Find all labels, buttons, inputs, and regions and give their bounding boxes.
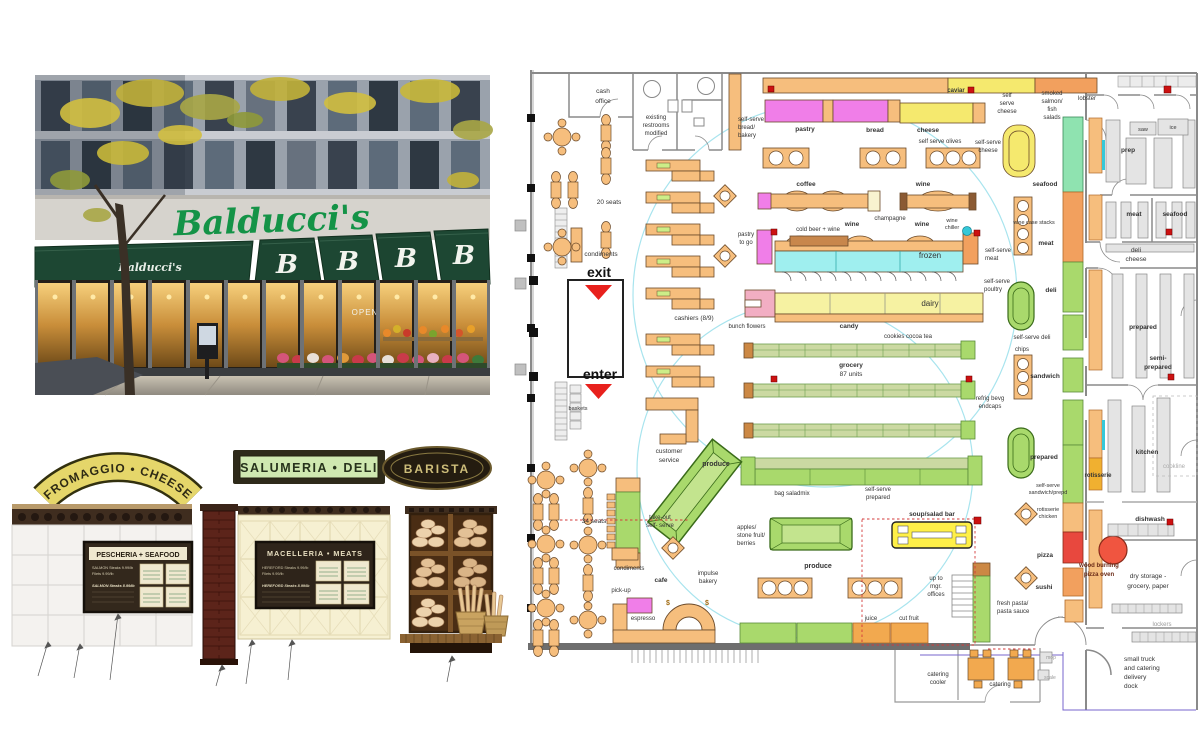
- pizza-oven: [1099, 536, 1127, 564]
- plan-label-exit: exit: [587, 264, 611, 280]
- plan-label-chiller: chiller: [945, 225, 960, 231]
- awning-monogram-b4: B: [452, 241, 475, 271]
- plan-label-catering: catering: [989, 682, 1010, 688]
- plan-label-rotisserie: rotisserie: [1037, 507, 1059, 513]
- bottom-cases: [740, 623, 928, 643]
- macelleria-menu-line: HEREFORD Steaks 9.99/lb: [262, 566, 308, 570]
- plan-label-prepared: prepared: [1144, 364, 1172, 371]
- plan-label-catering: catering: [927, 672, 948, 678]
- plan-label-self-serve: self-serve: [865, 487, 892, 493]
- frozen-cases: [757, 227, 978, 282]
- plan-label-chips: chips: [1015, 347, 1029, 353]
- plan-label-pick-up: pick-up: [611, 588, 631, 594]
- awning-monogram-b2: B: [336, 247, 359, 277]
- plan-label-dock: dock: [1124, 683, 1138, 690]
- plan-label-self-serve: self-serve: [975, 140, 1002, 146]
- plan-label-offices: offices: [927, 592, 944, 598]
- salumeria-deli-sign: SALUMERIA • DELI: [233, 450, 385, 484]
- plan-label-serve: serve: [1000, 101, 1015, 107]
- plan-label-cookline: cookline: [1163, 464, 1186, 470]
- plan-label-salads: salads: [1043, 115, 1060, 121]
- plan-label-condiments: condiments: [584, 251, 618, 258]
- plan-label-87-units: 87 units: [840, 371, 864, 378]
- plan-label-prepared: prepared: [1129, 324, 1157, 331]
- cafe-counter[interactable]: [613, 598, 715, 643]
- plan-label-and-catering: and catering: [1124, 665, 1160, 672]
- plan-label-coffee: coffee: [796, 181, 816, 188]
- plan-label-self-serve: self-serve: [738, 117, 765, 123]
- plan-label-grocery-paper: grocery, paper: [1127, 583, 1169, 590]
- plan-label-delivery: delivery: [1124, 674, 1147, 681]
- plan-label-take-out: take-out: [649, 515, 671, 521]
- plan-label-lobster: lobster: [1078, 96, 1096, 102]
- plan-label-pastry: pastry: [795, 126, 815, 133]
- dairy-cases: [745, 290, 983, 322]
- produce-demo-table: [758, 578, 812, 598]
- plan-label-endcaps: endcaps: [979, 404, 1002, 410]
- plan-label-small-truck: small truck: [1124, 656, 1156, 663]
- plan-label-20-seats: 20 seats: [597, 199, 622, 206]
- espresso-station[interactable]: [627, 598, 652, 613]
- plan-label-sandwich: sandwich: [1030, 373, 1060, 380]
- plan-label-wine-case-stacks: wine case stacks: [1012, 220, 1055, 226]
- bottom-wall: [528, 643, 970, 663]
- plan-label-stone-fruit-: stone fruit/: [737, 533, 765, 539]
- pescheria-menu-board: PESCHERIA + SEAFOOD SALMON Steaks 9.99/l…: [84, 542, 192, 612]
- plan-label-office: office: [595, 98, 611, 105]
- plan-label-34-seats: 34 seats: [582, 518, 607, 525]
- plan-label-restrooms: restrooms: [643, 123, 670, 129]
- bread-display: [400, 506, 508, 682]
- plan-label-baskets: baskets: [569, 406, 588, 412]
- plan-label-bread-: bread/: [738, 125, 755, 131]
- plan-label-self-serve: self-serve: [1036, 483, 1060, 489]
- plan-label--: $: [666, 600, 670, 607]
- grocery-gondolas: [744, 341, 975, 439]
- floor-plan: cashofficeexistingrestroomsmodified20 se…: [512, 52, 1200, 720]
- plan-label-rotisserie: rotisserie: [1084, 473, 1112, 479]
- awning-monogram-b3: B: [394, 244, 417, 274]
- plan-label-self-serve: self-serve: [985, 248, 1012, 254]
- catering-table: [1008, 650, 1034, 688]
- plan-label-bakery: bakery: [738, 133, 756, 139]
- plan-label-cooler: cooler: [930, 680, 946, 686]
- plan-label-champagne: champagne: [874, 216, 906, 222]
- plan-label-to-go: to go: [739, 240, 753, 246]
- macelleria-menu-board: MACELLERIA • MEATS HEREFORD Steaks 9.99/…: [256, 542, 374, 608]
- plan-label-poultry: poultry: [984, 287, 1002, 293]
- plan-label-pasta-sauce: pasta sauce: [997, 609, 1030, 615]
- plan-label-soup-salad-bar: soup/salad bar: [909, 511, 955, 518]
- callout-leaders: [447, 656, 455, 682]
- stairs-mgr-office[interactable]: [952, 575, 976, 617]
- fresh-pasta-gondola: [973, 563, 990, 642]
- plan-label-bag-saladmix: bag saladmix: [774, 491, 809, 497]
- plan-label-pastry: pastry: [738, 232, 754, 238]
- plan-label-fresh-pasta-: fresh pasta/: [997, 601, 1029, 607]
- plan-label-sushi: sushi: [1036, 584, 1053, 591]
- salumeria-sign-label: SALUMERIA • DELI: [240, 461, 378, 475]
- barista-sign: BARISTA: [383, 447, 491, 489]
- storefront-photo: Balducci's Balducci's B B B B: [35, 75, 490, 395]
- plan-label-self-serve: self-serve: [984, 279, 1011, 285]
- plan-label-mgr-: mgr.: [930, 584, 942, 590]
- wine-barrel-aisle: [900, 191, 976, 211]
- macelleria-elevation: MACELLERIA • MEATS HEREFORD Steaks 9.99/…: [200, 504, 390, 686]
- plan-label-deli: deli: [1045, 287, 1056, 294]
- checkout-lanes[interactable]: [646, 160, 714, 387]
- plan-label-dishwash: dishwash: [1135, 516, 1165, 523]
- plan-label-prep: prep: [1121, 147, 1135, 154]
- customer-service-desk[interactable]: [646, 398, 698, 444]
- plan-label-enter: enter: [583, 366, 618, 382]
- plan-label-self-serve: self- serve: [646, 523, 674, 529]
- plan-label-salmon-: salmon/: [1041, 99, 1062, 105]
- plan-label-scale: scale: [1044, 675, 1056, 681]
- corridor-wall-cases: [1089, 118, 1105, 608]
- plan-label-bunch-flowers: bunch flowers: [728, 324, 765, 330]
- plan-label-pizza-oven: pizza oven: [1084, 572, 1115, 578]
- plan-label-produce: produce: [804, 563, 832, 570]
- plan-label-condiments: condiments: [614, 566, 645, 572]
- plan-label-sandwich-prepd: sandwich/prepd: [1029, 490, 1068, 496]
- plan-label-cafe: cafe: [654, 577, 667, 584]
- apples-table: [770, 518, 852, 550]
- produce-demo-table: [848, 578, 902, 598]
- plan-label-service: service: [659, 457, 680, 464]
- plan-label-cashiers-8-9-: cashiers (8/9): [674, 315, 713, 322]
- plan-label-self-serve-deli: self-serve deli: [1013, 335, 1050, 341]
- pescheria-elevation: PESCHERIA + SEAFOOD SALMON Steaks 9.99/l…: [12, 504, 192, 680]
- plan-label-berries: berries: [737, 541, 755, 547]
- plan-label-frozen: frozen: [919, 251, 941, 260]
- plan-label-bakery: bakery: [699, 579, 717, 585]
- plan-label-seafood: seafood: [1033, 181, 1058, 188]
- plan-label-cookies-cocoa-tea: cookies cocoa tea: [884, 334, 933, 340]
- plan-label-prepared: prepared: [1030, 454, 1058, 461]
- plan-label-fish: fish: [1047, 107, 1056, 113]
- plan-label-up-to: up to: [929, 576, 943, 582]
- open-sign: OPEN: [352, 308, 379, 317]
- diamond-table: [1015, 567, 1038, 590]
- plan-label-ice: ice: [1169, 125, 1176, 131]
- pescheria-title: PESCHERIA + SEAFOOD: [96, 552, 179, 559]
- demo-table: [860, 148, 906, 168]
- plan-label-modified: modified: [645, 131, 668, 137]
- plan-label-cheese: cheese: [1126, 256, 1147, 263]
- pescheria-menu-line: SALMON Steaks 9.99/lb: [92, 566, 133, 570]
- awning-monogram-b1: B: [275, 250, 298, 280]
- plan-label-smoked: smoked: [1041, 91, 1062, 97]
- plan-label-wine: wine: [915, 181, 931, 188]
- plan-label-impulse: impulse: [698, 571, 719, 577]
- plan-label-cheese: cheese: [917, 127, 939, 134]
- plan-label-dairy: dairy: [921, 299, 938, 308]
- plan-label-meat: meat: [1126, 211, 1142, 218]
- plan-label-kitchen: kitchen: [1136, 449, 1159, 456]
- plan-label-deli: deli: [1131, 247, 1141, 254]
- plan-label-dry-storage-: dry storage -: [1130, 573, 1167, 580]
- demo-table: [763, 148, 809, 168]
- plan-label-cut-fruit: cut fruit: [899, 616, 919, 622]
- plan-label-cheese: cheese: [997, 109, 1017, 115]
- plan-label-wine: wine: [844, 221, 860, 228]
- plan-label-chicken: chicken: [1039, 514, 1058, 520]
- plan-label-meat: meat: [985, 256, 999, 262]
- presentation-board: { "photo": { "script_sign": "Balducci's"…: [0, 0, 1200, 740]
- plan-label-cash: cash: [596, 88, 610, 95]
- plan-label-customer: customer: [656, 448, 684, 455]
- cafe-seating-34[interactable]: [528, 450, 606, 657]
- barista-sign-label: BARISTA: [404, 462, 470, 476]
- plan-label-existing: existing: [646, 115, 666, 121]
- produce-gondola: [741, 456, 982, 485]
- plan-label-self-serve-olives: self serve olives: [919, 139, 962, 145]
- plan-label-wine: wine: [914, 221, 930, 228]
- plan-label-semi-: semi-: [1150, 355, 1167, 362]
- plan-label-produce: produce: [702, 461, 730, 468]
- plan-label-prepared: prepared: [866, 495, 890, 501]
- plan-label-wood-burning: wood burning: [1078, 563, 1119, 569]
- plan-label-cheese: cheese: [978, 148, 998, 154]
- plan-label-grocery: grocery: [839, 362, 863, 369]
- macelleria-menu-line: Filets 9.99/lb: [262, 572, 284, 576]
- plan-label-caviar: caviar: [947, 88, 965, 94]
- takeout-gondola: [607, 478, 640, 568]
- plan-label-juice: juice: [864, 616, 878, 622]
- plan-label-saw: saw: [1138, 127, 1148, 133]
- plan-label-pizza: pizza: [1037, 552, 1053, 559]
- pescheria-menu-line: SALMON Steaks 8.99/lb: [92, 584, 135, 588]
- diamond-table: [714, 185, 737, 208]
- plan-label-lockers: lockers: [1152, 622, 1171, 628]
- macelleria-title: MACELLERIA • MEATS: [267, 549, 363, 558]
- wine-case-stack-table: [1014, 197, 1032, 255]
- plan-label-cold-beer-wine: cold beer + wine: [796, 227, 841, 233]
- plan-label-wine: wine: [945, 218, 957, 224]
- pescheria-menu-line: Filets 9.99/lb: [92, 572, 114, 576]
- enter-arrow: [585, 384, 612, 399]
- plan-label--: $: [705, 600, 709, 607]
- boh-equipment: [1038, 119, 1196, 680]
- olives-table: [926, 148, 980, 168]
- signage-elevations: FROMAGGIO • CHEESE SALUMERIA • DELI BARI…: [0, 430, 510, 740]
- fromaggio-cheese-sign: FROMAGGIO • CHEESE: [41, 461, 195, 502]
- plan-label-meat: meat: [1038, 240, 1054, 247]
- plan-label-bread: bread: [866, 127, 884, 134]
- service-counters-strip: [1063, 117, 1083, 622]
- plan-label-apples-: apples/: [737, 525, 757, 531]
- diamond-table: [1015, 503, 1038, 526]
- plan-label-mop: mop: [1046, 655, 1056, 661]
- plan-label-candy: candy: [840, 323, 859, 330]
- plan-label-refrig-bevg: refrig bevg: [976, 396, 1004, 402]
- soup-salad-bar: [892, 522, 972, 548]
- coffee-aisle: [758, 191, 880, 211]
- plan-label-seafood: seafood: [1163, 211, 1188, 218]
- diamond-table: [714, 245, 737, 268]
- macelleria-menu-line: HEREFORD Steaks 8.99/lb: [262, 584, 310, 588]
- plan-label-self: self: [1002, 93, 1012, 99]
- plan-label-espresso: espresso: [631, 616, 656, 622]
